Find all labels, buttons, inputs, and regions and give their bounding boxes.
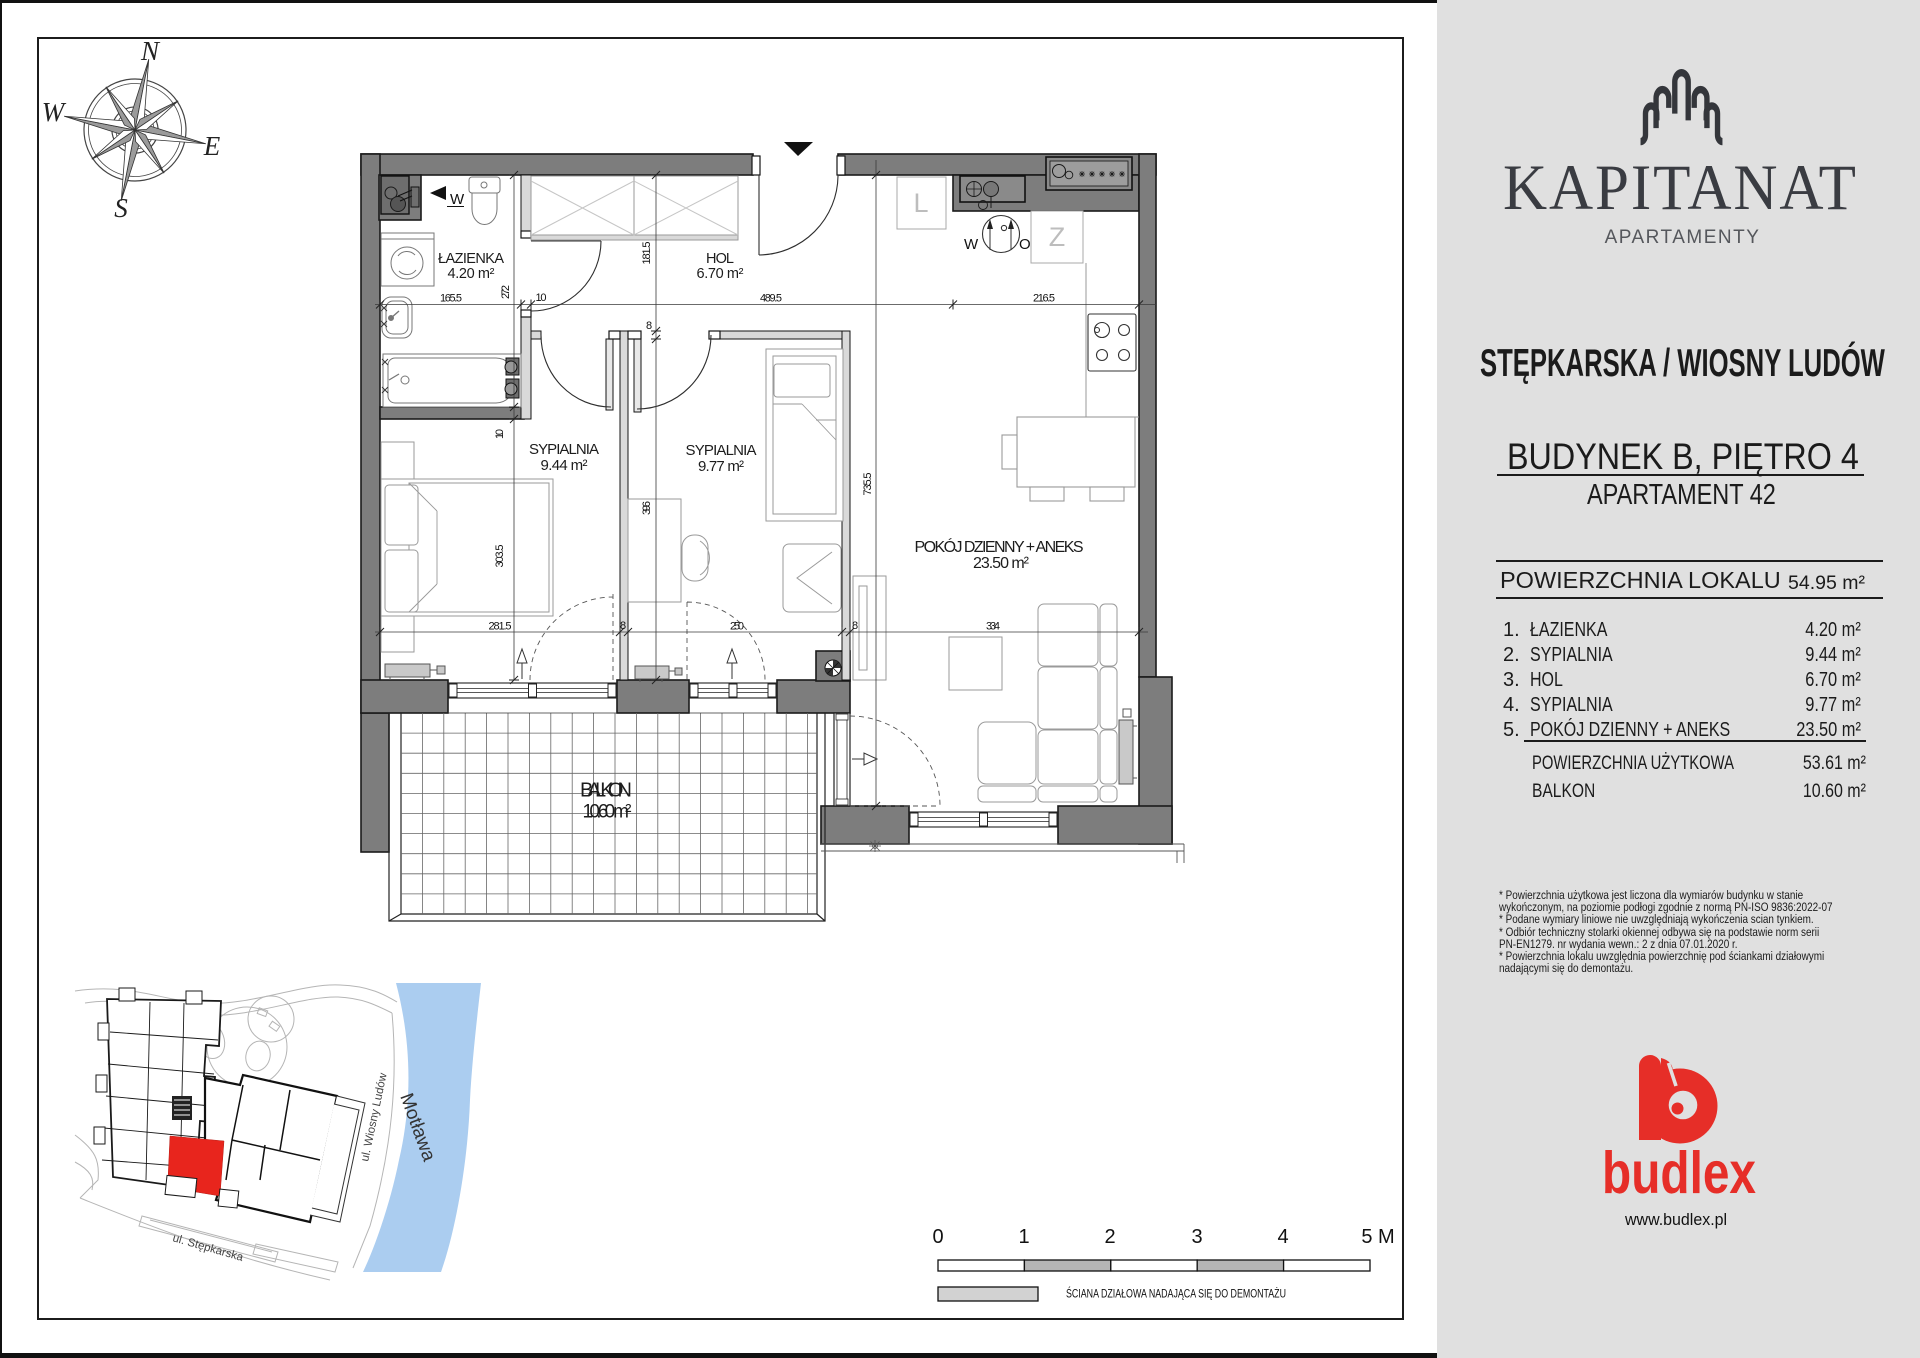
svg-text:0: 0 <box>932 1226 943 1248</box>
svg-text:W: W <box>450 191 465 208</box>
svg-text:POKÓJ DZIENNY + ANEKS: POKÓJ DZIENNY + ANEKS <box>915 537 1084 556</box>
svg-text:2: 2 <box>1104 1226 1115 1248</box>
svg-text:334: 334 <box>986 621 1000 633</box>
svg-text:165.5: 165.5 <box>440 293 462 305</box>
svg-text:S: S <box>114 193 128 223</box>
svg-text:1: 1 <box>1018 1226 1029 1248</box>
svg-text:10.60 m²: 10.60 m² <box>583 802 632 823</box>
svg-text:O: O <box>1019 236 1031 253</box>
svg-text:3: 3 <box>1191 1226 1202 1248</box>
svg-text:W: W <box>42 97 67 127</box>
svg-text:SYPIALNIA: SYPIALNIA <box>686 442 757 459</box>
svg-text:8: 8 <box>620 620 626 632</box>
svg-text:N: N <box>140 36 161 66</box>
svg-text:8: 8 <box>646 320 652 332</box>
svg-text:4.20 m²: 4.20 m² <box>448 266 495 282</box>
svg-text:10: 10 <box>494 429 506 439</box>
svg-text:735.5: 735.5 <box>862 473 874 496</box>
svg-text:5 M: 5 M <box>1361 1226 1394 1248</box>
svg-text:216.5: 216.5 <box>1033 293 1055 305</box>
svg-text:L: L <box>913 188 928 218</box>
svg-text:BALKON: BALKON <box>580 780 632 802</box>
svg-text:250: 250 <box>730 621 744 633</box>
svg-text:SYPIALNIA: SYPIALNIA <box>529 441 599 458</box>
svg-text:www.budlex.pl: www.budlex.pl <box>1624 1211 1727 1230</box>
svg-text:489.5: 489.5 <box>760 293 782 305</box>
svg-text:Z: Z <box>1049 222 1066 252</box>
svg-text:HOL: HOL <box>706 251 734 267</box>
svg-text:272: 272 <box>500 285 512 299</box>
svg-text:396: 396 <box>641 501 653 515</box>
svg-text:ul. Wiosny Ludów: ul. Wiosny Ludów <box>359 1071 390 1162</box>
svg-text:budlex: budlex <box>1602 1140 1756 1206</box>
svg-text:W: W <box>964 236 979 253</box>
svg-text:23.50 m²: 23.50 m² <box>973 555 1030 572</box>
svg-text:303.5: 303.5 <box>494 545 506 568</box>
svg-text:9.44 m²: 9.44 m² <box>541 457 588 474</box>
svg-text:281.5: 281.5 <box>489 621 512 633</box>
svg-text:ŚCIANA DZIAŁOWA NADAJĄCA SIĘ D: ŚCIANA DZIAŁOWA NADAJĄCA SIĘ DO DEMONTAŻ… <box>1066 1286 1286 1301</box>
svg-text:8: 8 <box>852 620 858 632</box>
svg-text:4: 4 <box>1277 1226 1288 1248</box>
svg-text:9.77 m²: 9.77 m² <box>698 458 744 475</box>
svg-text:10: 10 <box>536 292 547 304</box>
svg-text:6.70 m²: 6.70 m² <box>697 266 744 282</box>
svg-text:ul. Stępkarska: ul. Stępkarska <box>171 1232 245 1264</box>
svg-text:E: E <box>203 131 221 161</box>
svg-text:181.5: 181.5 <box>641 242 653 265</box>
svg-text:ŁAZIENKA: ŁAZIENKA <box>438 251 504 267</box>
